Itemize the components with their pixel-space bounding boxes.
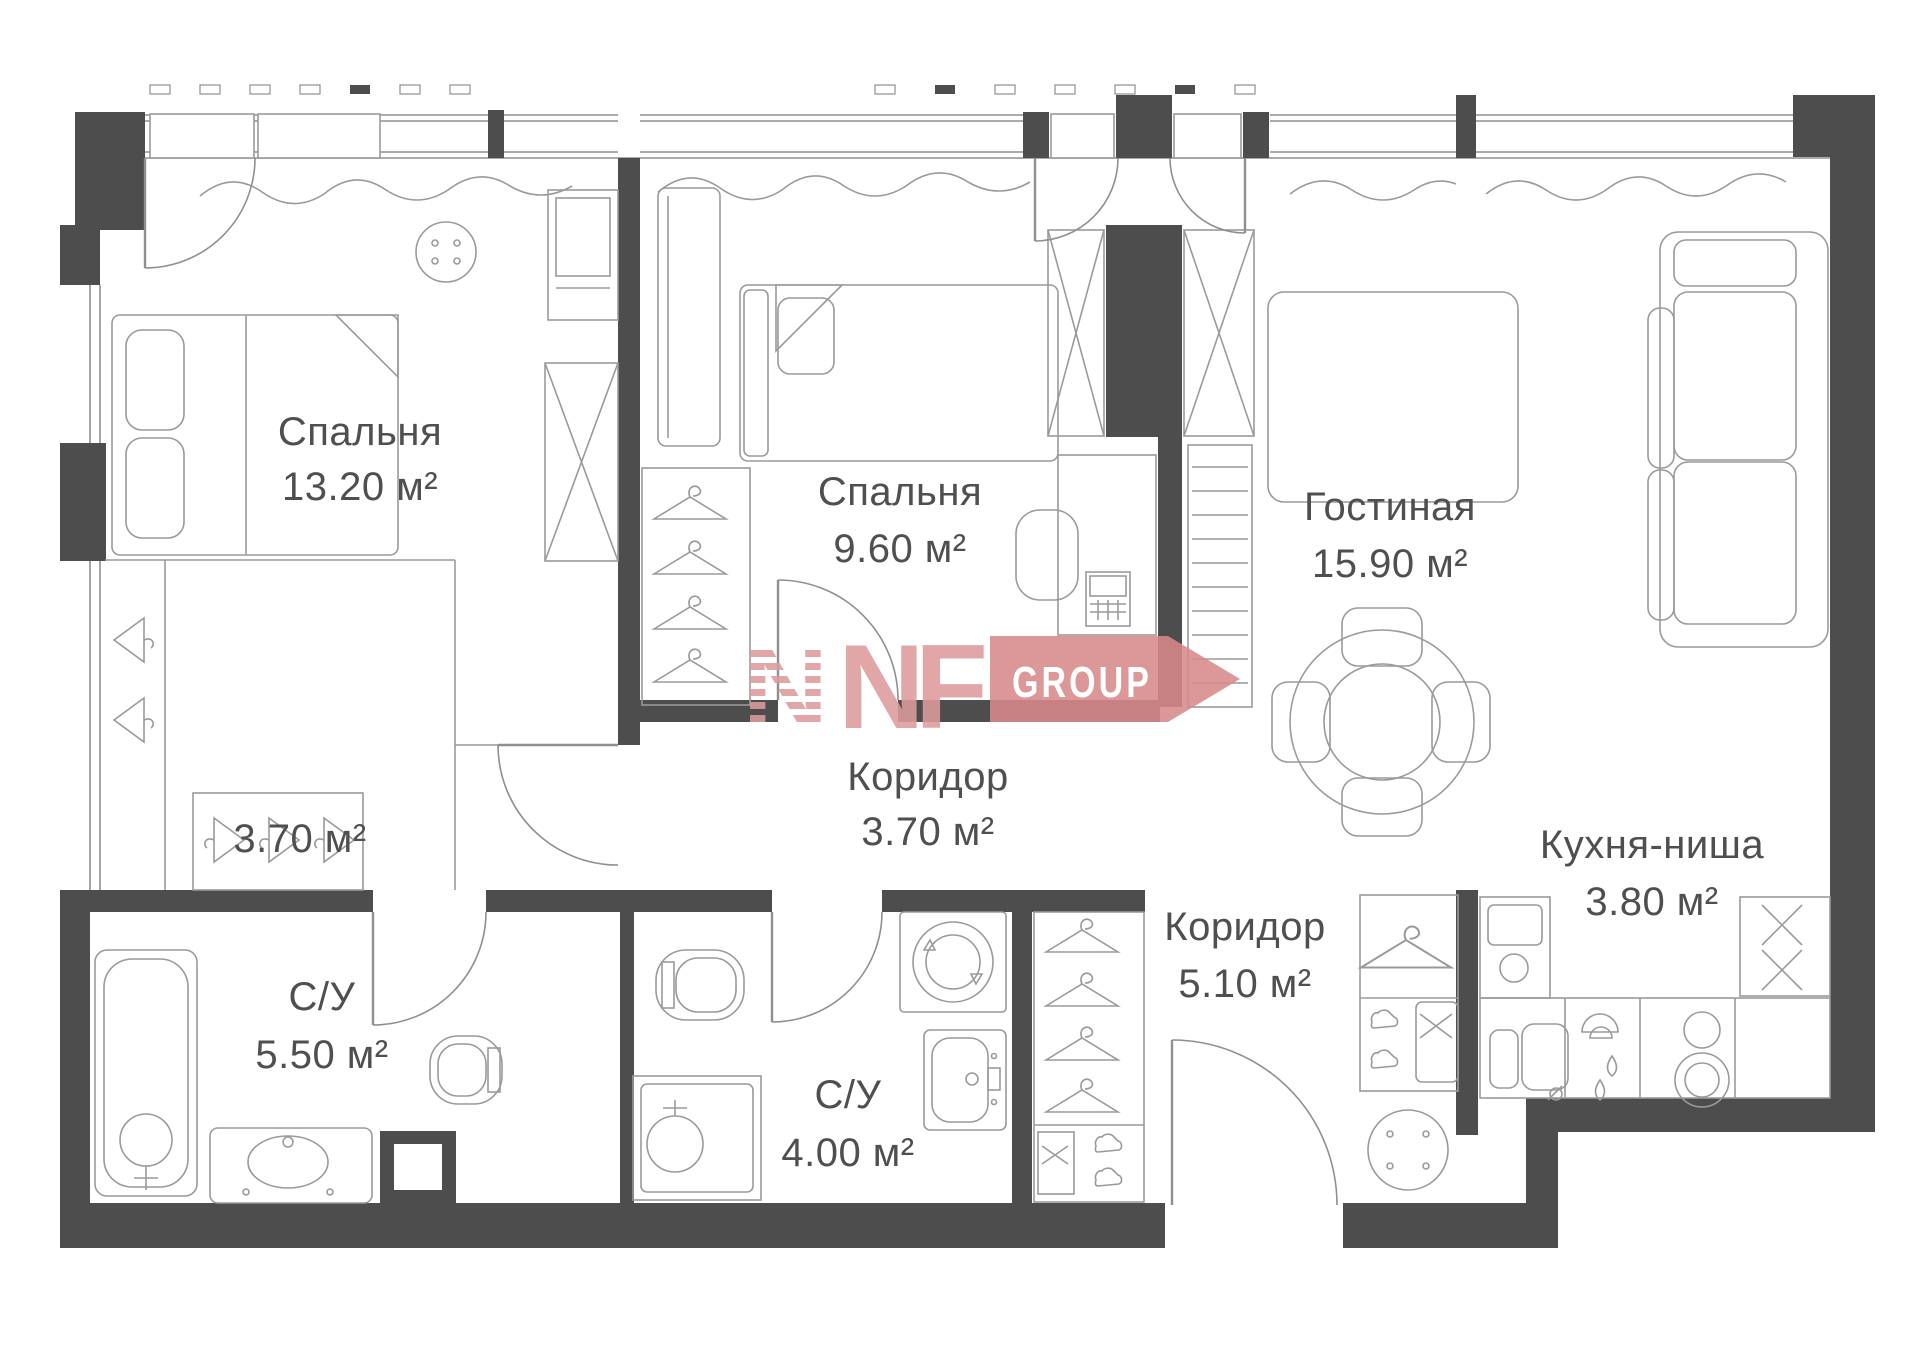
chair <box>1272 682 1330 762</box>
shaft-inner <box>394 1144 442 1190</box>
closet <box>642 468 750 705</box>
watermark-mark: N <box>742 620 829 754</box>
door-jamb <box>1023 112 1049 158</box>
blanket-fold <box>776 285 842 351</box>
room-area-label: 13.20 м² <box>282 465 438 509</box>
blanket-fold <box>336 315 398 377</box>
chair <box>1342 778 1422 836</box>
wall-segment <box>1032 890 1145 912</box>
shower <box>633 1076 761 1200</box>
pillow <box>126 330 184 430</box>
room-area-label: 5.50 м² <box>255 1033 388 1077</box>
room-name-label: Коридор <box>847 755 1008 799</box>
sink-basin <box>248 1136 328 1188</box>
toilet <box>430 1036 502 1104</box>
door-balcony-right <box>1170 158 1245 233</box>
room-name-label: Гостиная <box>1304 485 1476 529</box>
room-area-label: 9.60 м² <box>833 527 966 571</box>
desk <box>1058 455 1156 635</box>
vanity <box>210 1128 372 1203</box>
kitchen-counter <box>1480 897 1830 1107</box>
bathtub <box>95 950 197 1196</box>
wall-segment <box>1343 1203 1541 1248</box>
wall-segment <box>1456 890 1478 1135</box>
wall-segment <box>1526 1098 1875 1132</box>
column <box>1106 225 1182 437</box>
wall-segment <box>1793 95 1875 157</box>
pillow <box>778 298 834 374</box>
wall-segment <box>60 890 373 912</box>
side-table <box>416 222 476 282</box>
room-area-label: 15.90 м² <box>1312 542 1468 586</box>
room-area-label: 3.80 м² <box>1585 880 1718 924</box>
room-name-label: Коридор <box>1164 905 1325 949</box>
window-mullion <box>1456 95 1476 158</box>
cutting-board <box>1582 1014 1618 1032</box>
window-pillar <box>1116 95 1172 158</box>
door-jamb <box>1243 112 1269 158</box>
wall-segment <box>882 890 1012 912</box>
shower-head <box>120 1114 172 1166</box>
wall-segment <box>632 890 772 912</box>
wall-segment <box>620 890 634 1203</box>
watermark-letters: NF <box>838 620 988 754</box>
office-chair <box>1016 510 1078 600</box>
tall-cabinet <box>1740 897 1830 996</box>
wall-segment <box>60 443 106 561</box>
chair <box>1342 608 1422 666</box>
curtain-waves <box>200 173 1786 204</box>
room-area-label: 3.70 м² <box>861 810 994 854</box>
floor-plan-page: Спальня 13.20 м² Спальня 9.60 м² Гостина… <box>0 0 1920 1356</box>
headboard <box>744 290 768 456</box>
room-name-label: Кухня-ниша <box>1540 823 1764 867</box>
door-balcony-left <box>1035 158 1118 241</box>
kitchen-sink <box>1490 1030 1518 1088</box>
room-area-label: 4.00 м² <box>781 1131 914 1175</box>
window-mullion <box>488 110 504 158</box>
wall-segment <box>1830 150 1875 1132</box>
pillow <box>126 438 184 538</box>
door-entrance <box>1172 1040 1337 1205</box>
wall-segment <box>486 890 620 912</box>
door-bathroom-2 <box>772 912 882 1022</box>
floor-plan-drawing: Спальня 13.20 м² Спальня 9.60 м² Гостина… <box>0 0 1920 1356</box>
wall-segment <box>60 1203 1165 1248</box>
hall-wardrobe <box>1360 895 1458 1190</box>
wall-segment <box>1012 890 1032 1203</box>
wall-segment <box>60 225 100 285</box>
room-name-label: Спальня <box>818 470 982 514</box>
room-labels: Спальня 13.20 м² Спальня 9.60 м² Гостина… <box>233 410 1764 1175</box>
toilet <box>656 950 744 1020</box>
washing-machine <box>900 912 1006 1012</box>
room-name-label: Спальня <box>278 410 442 454</box>
room-name-label: С/У <box>289 975 356 1019</box>
living-room-furniture <box>1184 230 1828 836</box>
wall-segment <box>60 900 90 1248</box>
door-bathroom-1 <box>373 912 486 1025</box>
wall-segment <box>618 158 640 745</box>
nf-group-watermark: N NF GROUP <box>742 620 1240 754</box>
sofa <box>1660 232 1828 647</box>
wall-segment <box>75 112 145 230</box>
rug <box>1268 292 1518 502</box>
laundry-basket <box>1368 1110 1448 1190</box>
entry-wardrobe <box>1034 912 1144 1202</box>
window-vent-ticks <box>150 85 1255 94</box>
room-area-label: 5.10 м² <box>1178 962 1311 1006</box>
watermark-badge-text: GROUP <box>1012 658 1152 707</box>
room-area-label: 3.70 м² <box>233 817 366 861</box>
door-window-bedroom-1 <box>145 158 255 268</box>
door-bedroom-1 <box>498 745 618 865</box>
dresser <box>548 190 618 320</box>
dining-table <box>1290 630 1474 814</box>
room-name-label: С/У <box>815 1073 882 1117</box>
hob-burner <box>1684 1012 1720 1048</box>
